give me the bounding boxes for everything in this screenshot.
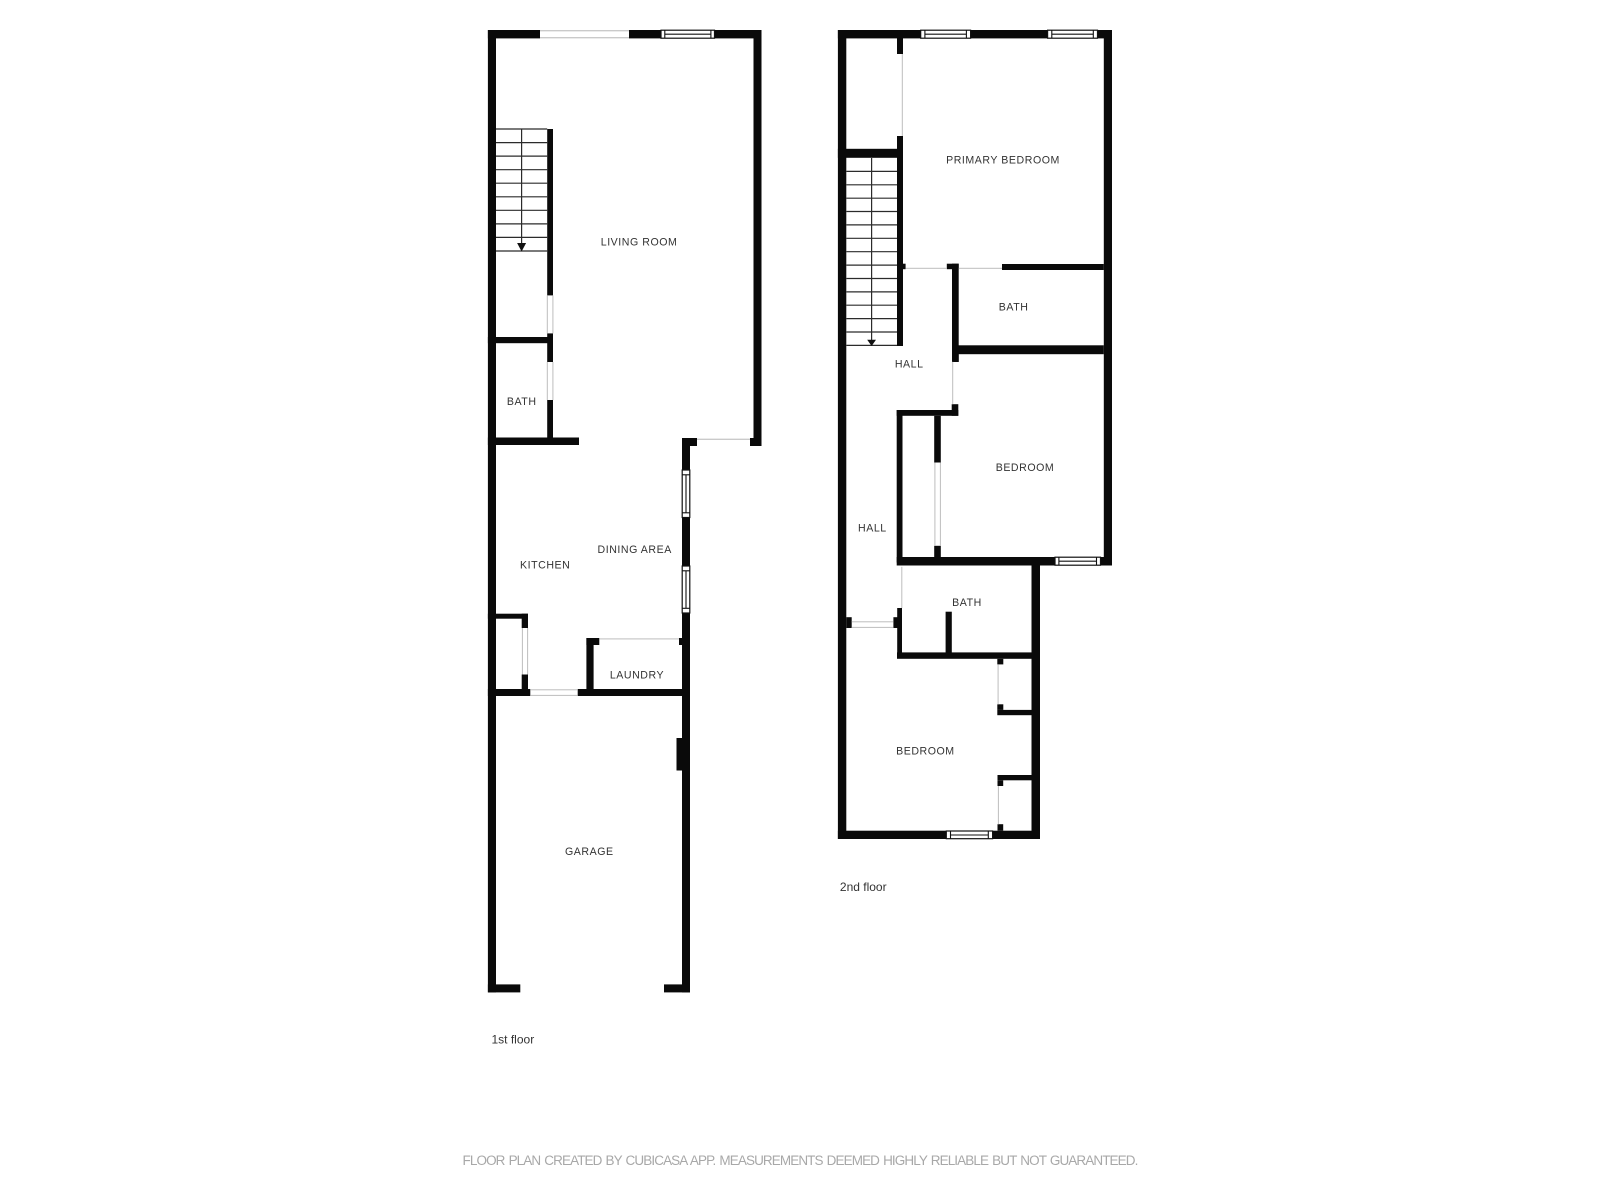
svg-text:BEDROOM: BEDROOM — [896, 746, 955, 758]
svg-text:LIVING ROOM: LIVING ROOM — [601, 237, 678, 249]
svg-text:FLOOR PLAN CREATED BY CUBICASA: FLOOR PLAN CREATED BY CUBICASA APP. MEAS… — [463, 1153, 1138, 1168]
svg-text:BATH: BATH — [999, 301, 1029, 313]
svg-text:PRIMARY BEDROOM: PRIMARY BEDROOM — [946, 155, 1060, 167]
svg-text:BATH: BATH — [507, 396, 537, 408]
svg-text:LAUNDRY: LAUNDRY — [610, 669, 664, 681]
svg-text:BATH: BATH — [952, 597, 982, 609]
svg-text:KITCHEN: KITCHEN — [520, 559, 570, 571]
svg-text:BEDROOM: BEDROOM — [996, 462, 1055, 474]
svg-text:DINING AREA: DINING AREA — [598, 544, 673, 556]
svg-text:HALL: HALL — [858, 523, 887, 535]
svg-text:HALL: HALL — [895, 359, 924, 371]
svg-text:1st floor: 1st floor — [492, 1032, 535, 1046]
svg-text:GARAGE: GARAGE — [565, 846, 614, 858]
svg-text:2nd floor: 2nd floor — [840, 880, 887, 894]
